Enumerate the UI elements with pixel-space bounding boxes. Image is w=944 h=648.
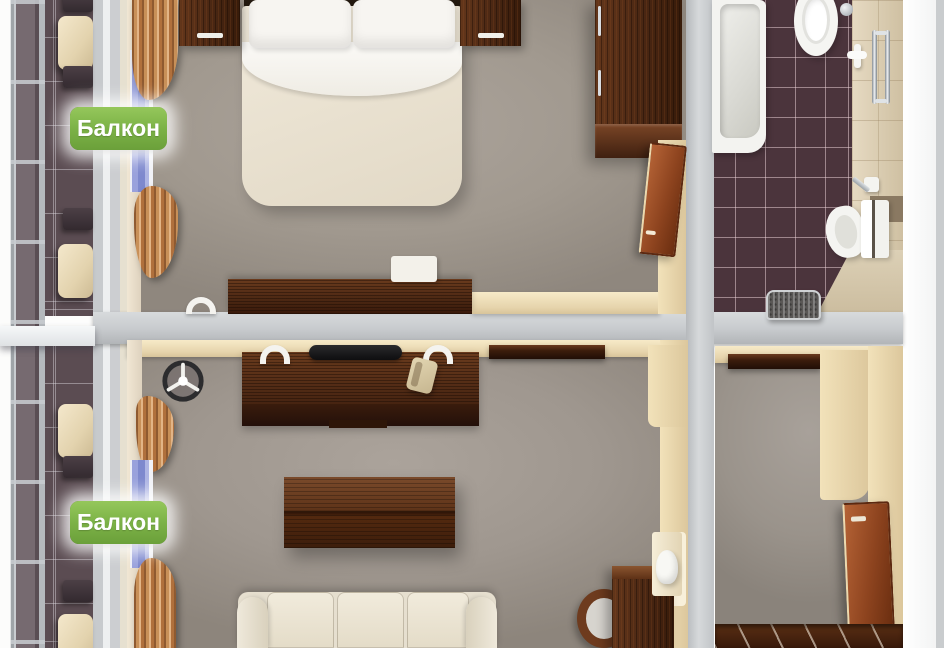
sofa-cushion bbox=[267, 592, 334, 648]
sofa-cushion bbox=[407, 592, 469, 648]
door-handle bbox=[851, 516, 866, 522]
balcony-chair bbox=[58, 16, 93, 70]
telephone-handset bbox=[410, 361, 423, 387]
towel-rail bbox=[872, 30, 891, 104]
wardrobe-handle bbox=[598, 6, 601, 36]
nightstand-handle bbox=[197, 33, 223, 38]
balcony-chair bbox=[58, 244, 93, 298]
toilet-seat bbox=[802, 0, 830, 44]
toilet-valve bbox=[840, 3, 853, 16]
bedroom-desk bbox=[228, 279, 472, 314]
towel-rail-bar bbox=[875, 31, 887, 35]
fan-icon bbox=[160, 358, 206, 404]
nightstand-right bbox=[460, 0, 521, 46]
wardrobe bbox=[595, 0, 682, 158]
wall-shelf bbox=[489, 345, 605, 359]
sink-bowl bbox=[832, 213, 860, 250]
balcony-table bbox=[63, 66, 93, 88]
coffee-table bbox=[284, 477, 455, 548]
bed-pillow-right bbox=[353, 0, 455, 48]
hallway-shelf bbox=[728, 354, 821, 369]
sink-mirror-panel bbox=[861, 200, 889, 258]
sofa-armrest-right bbox=[466, 597, 497, 648]
bathtub-basin bbox=[720, 4, 760, 138]
towel-rail-bar bbox=[875, 99, 887, 103]
desk-drawer bbox=[329, 420, 387, 428]
balcony-table bbox=[63, 0, 93, 12]
vase bbox=[656, 550, 678, 584]
living-room-curtain-bottom bbox=[134, 558, 176, 648]
floorplan-scene: Балкон Балкон bbox=[0, 0, 944, 648]
towel-rail-bar bbox=[885, 30, 890, 104]
sofa-cushion bbox=[337, 592, 404, 648]
outer-right-wall-edge bbox=[936, 0, 944, 648]
wardrobe-handle bbox=[598, 70, 601, 96]
balcony-label-text: Балкон bbox=[77, 509, 160, 536]
hallway-closet-wall bbox=[820, 350, 870, 500]
towel-rail-bar bbox=[872, 30, 877, 104]
balcony-divider-ledge bbox=[0, 326, 95, 346]
nightstand-left bbox=[179, 0, 240, 46]
shower-holder-bar bbox=[847, 51, 867, 59]
trash-bin bbox=[766, 290, 821, 320]
entry-wood-floor bbox=[715, 624, 903, 648]
balcony-table bbox=[63, 456, 93, 478]
entry-door bbox=[842, 501, 894, 629]
balcony-chair bbox=[58, 404, 93, 458]
balcony-table bbox=[63, 208, 93, 230]
balcony-label-bottom: Балкон bbox=[70, 501, 167, 544]
right-dividing-wall bbox=[686, 0, 714, 648]
tv bbox=[309, 345, 402, 360]
bedroom-desk-chair-seat bbox=[391, 256, 437, 282]
table-fan bbox=[160, 358, 206, 404]
balcony-bottom-floor bbox=[45, 346, 93, 648]
bathtub bbox=[712, 0, 766, 153]
sofa-armrest-left bbox=[237, 597, 268, 648]
living-room-right-wall-upper bbox=[648, 345, 688, 427]
door-handle bbox=[646, 230, 656, 235]
shower-holder bbox=[847, 44, 867, 68]
bedroom-bottom-wall-face bbox=[472, 292, 660, 314]
bed-pillow-left bbox=[249, 0, 351, 48]
balcony-label-text: Балкон bbox=[77, 115, 160, 142]
balcony-table bbox=[63, 580, 93, 602]
nightstand-handle bbox=[478, 33, 504, 38]
balcony-glazing bbox=[11, 0, 45, 648]
balcony-label-top: Балкон bbox=[70, 107, 167, 150]
outer-left-band bbox=[0, 0, 11, 648]
balcony-chair bbox=[58, 614, 93, 648]
